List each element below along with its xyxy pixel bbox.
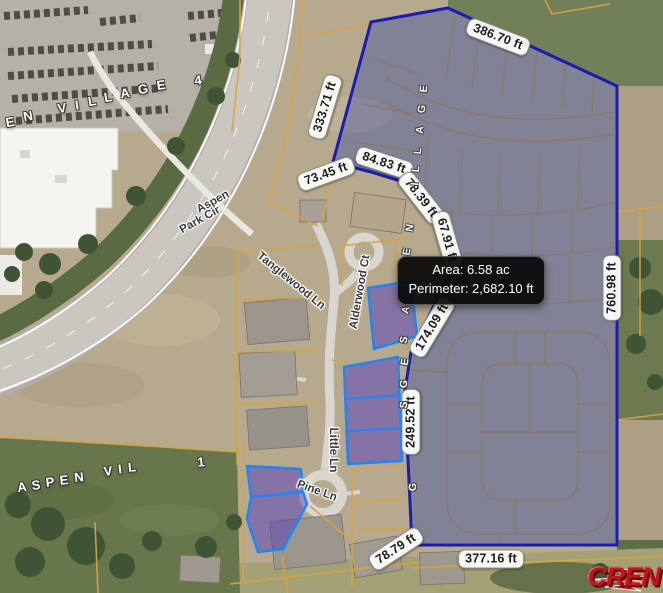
tooltip-area: Area: 6.58 ac [404, 261, 538, 280]
area_letter-label: A [119, 85, 130, 101]
area_letter-label: L [127, 459, 136, 475]
area_letter-label: N [74, 469, 85, 485]
cren-logo: CREN [587, 564, 660, 591]
area_letter-label: S [31, 477, 41, 493]
boundary_letter-label: G [407, 483, 419, 492]
tooltip-perimeter: Perimeter: 2,682.10 ft [404, 280, 538, 299]
area_letter-label: 1 [197, 454, 206, 470]
map-canvas[interactable]: 386.70 ft333.71 ft73.45 ft84.83 ft78.39 … [0, 0, 663, 593]
cren-logo-text: CREN [587, 565, 660, 591]
area_letter-label: E [156, 77, 167, 93]
boundary_letter-label: G [416, 104, 429, 113]
measurement-label: 760.98 ft [603, 255, 622, 321]
area_letter-label: V [103, 463, 113, 479]
boundary_letter-label: G [397, 379, 410, 389]
area_letter-label: E [59, 472, 69, 488]
measurement-label: 377.16 ft [458, 550, 524, 569]
selection-tooltip: Area: 6.58 ac Perimeter: 2,682.10 ft [397, 256, 545, 305]
boundary_letter-label: S [398, 401, 411, 409]
highlighted-parcel-2[interactable] [344, 357, 402, 464]
measurement-label: 249.52 ft [402, 389, 421, 455]
area_letter-label: P [45, 474, 55, 490]
area_letter-label: A [16, 479, 27, 495]
area_letter-label: V [57, 100, 68, 116]
area_letter-label: E [4, 114, 15, 130]
boundary_letter-label: L [412, 147, 425, 154]
street-label: Little Ln [327, 428, 339, 473]
area_letter-label: G [137, 81, 149, 97]
boundary_letter-label: A [414, 126, 427, 135]
boundary_letter-label: L [410, 165, 423, 172]
boundary_letter-label: E [418, 85, 431, 93]
